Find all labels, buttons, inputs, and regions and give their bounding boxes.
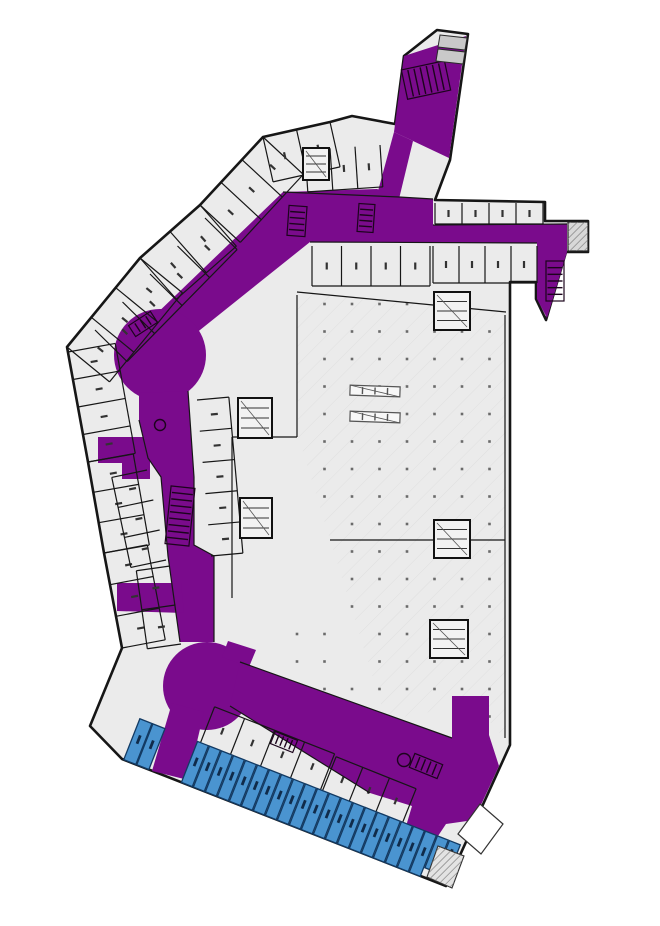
grid-dot [323, 468, 326, 471]
service-core [303, 148, 329, 180]
service-core [434, 520, 470, 558]
grid-dot [461, 660, 464, 663]
grid-dot [378, 688, 381, 691]
grid-dot [461, 605, 464, 608]
escalator-symbol [350, 411, 400, 423]
grid-dot [323, 633, 326, 636]
grid-dot [351, 495, 354, 498]
east-entrance-canopy [568, 222, 588, 251]
rotunda-upper [114, 309, 206, 401]
grid-dot [433, 660, 436, 663]
grid-dot [433, 578, 436, 581]
grid-dot [406, 440, 409, 443]
grid-dot [351, 688, 354, 691]
grid-dot [378, 578, 381, 581]
grid-dot [406, 330, 409, 333]
service-core [240, 498, 272, 538]
grid-dot [351, 440, 354, 443]
floor-plan-canvas [0, 0, 660, 926]
grid-dot [351, 330, 354, 333]
grid-dot [433, 440, 436, 443]
grid-dot [488, 330, 491, 333]
grid-dot [406, 413, 409, 416]
room-label-mark [471, 261, 473, 268]
grid-dot [488, 413, 491, 416]
grid-dot [488, 495, 491, 498]
grid-dot [488, 578, 491, 581]
grid-dot [351, 358, 354, 361]
grid-dot [433, 385, 436, 388]
grid-dot [406, 688, 409, 691]
grid-dot [406, 385, 409, 388]
grid-dot [461, 440, 464, 443]
grid-dot [488, 440, 491, 443]
grid-dot [323, 385, 326, 388]
grid-dot [406, 495, 409, 498]
grid-dot [378, 303, 381, 306]
grid-dot [433, 495, 436, 498]
grid-dot [323, 660, 326, 663]
grid-dot [406, 633, 409, 636]
grid-dot [488, 550, 491, 553]
grid-dot [406, 550, 409, 553]
grid-dot [406, 660, 409, 663]
grid-dot [378, 660, 381, 663]
grid-dot [351, 605, 354, 608]
grid-dot [323, 358, 326, 361]
room-label-mark [523, 261, 525, 268]
grid-dot [323, 413, 326, 416]
room-label-mark [343, 165, 346, 172]
room-label-mark [474, 210, 476, 217]
grid-dot [433, 688, 436, 691]
room-label-mark [414, 263, 416, 270]
grid-dot [406, 468, 409, 471]
room-label-mark [528, 210, 530, 217]
stair-bar-top-2 [436, 49, 465, 64]
room-label-mark [447, 210, 449, 217]
floor-plan-svg [0, 0, 660, 926]
grid-dot [488, 358, 491, 361]
grid-dot [351, 550, 354, 553]
grid-dot [433, 468, 436, 471]
grid-dot [323, 688, 326, 691]
room-label-mark [497, 261, 499, 268]
grid-dot [461, 468, 464, 471]
grid-dot [406, 578, 409, 581]
grid-dot [488, 605, 491, 608]
escalator-bar [359, 226, 372, 227]
room-label-mark [385, 263, 387, 270]
grid-dot [488, 660, 491, 663]
grid-dot [378, 550, 381, 553]
grid-dot [323, 495, 326, 498]
grid-dot [461, 385, 464, 388]
escalator-bar [359, 220, 372, 221]
grid-dot [351, 468, 354, 471]
grid-dot [461, 688, 464, 691]
grid-dot [461, 495, 464, 498]
grid-dot [406, 358, 409, 361]
room-label-mark [355, 263, 357, 270]
grid-dot [378, 330, 381, 333]
escalator-symbol [350, 385, 400, 397]
grid-dot [378, 633, 381, 636]
room-label-mark [501, 210, 503, 217]
grid-dot [488, 468, 491, 471]
grid-dot [406, 605, 409, 608]
grid-dot [488, 385, 491, 388]
grid-dot [351, 523, 354, 526]
grid-dot [351, 303, 354, 306]
grid-dot [296, 633, 299, 636]
grid-dot [488, 633, 491, 636]
grid-dot [488, 688, 491, 691]
grid-dot [378, 358, 381, 361]
service-core [238, 398, 272, 438]
grid-dot [323, 303, 326, 306]
grid-dot [461, 413, 464, 416]
grid-dot [461, 578, 464, 581]
grid-dot [433, 358, 436, 361]
grid-dot [378, 495, 381, 498]
grid-dot [378, 440, 381, 443]
grid-dot [296, 660, 299, 663]
escalator-symbol [546, 261, 564, 301]
escalator-bar [360, 209, 373, 210]
room-label-mark [368, 163, 371, 170]
service-core [434, 292, 470, 330]
room-label-mark [445, 261, 447, 268]
grid-dot [323, 440, 326, 443]
grid-dot [351, 578, 354, 581]
escalator-bar [360, 215, 373, 216]
grid-dot [433, 605, 436, 608]
grid-dot [378, 605, 381, 608]
grid-dot [323, 330, 326, 333]
grid-dot [406, 523, 409, 526]
grid-dot [378, 468, 381, 471]
grid-dot [378, 523, 381, 526]
grid-dot [488, 523, 491, 526]
stair-bar-top-1 [438, 35, 467, 50]
grid-dot [461, 358, 464, 361]
service-core [430, 620, 468, 658]
room-label-mark [326, 263, 328, 270]
grid-dot [433, 413, 436, 416]
